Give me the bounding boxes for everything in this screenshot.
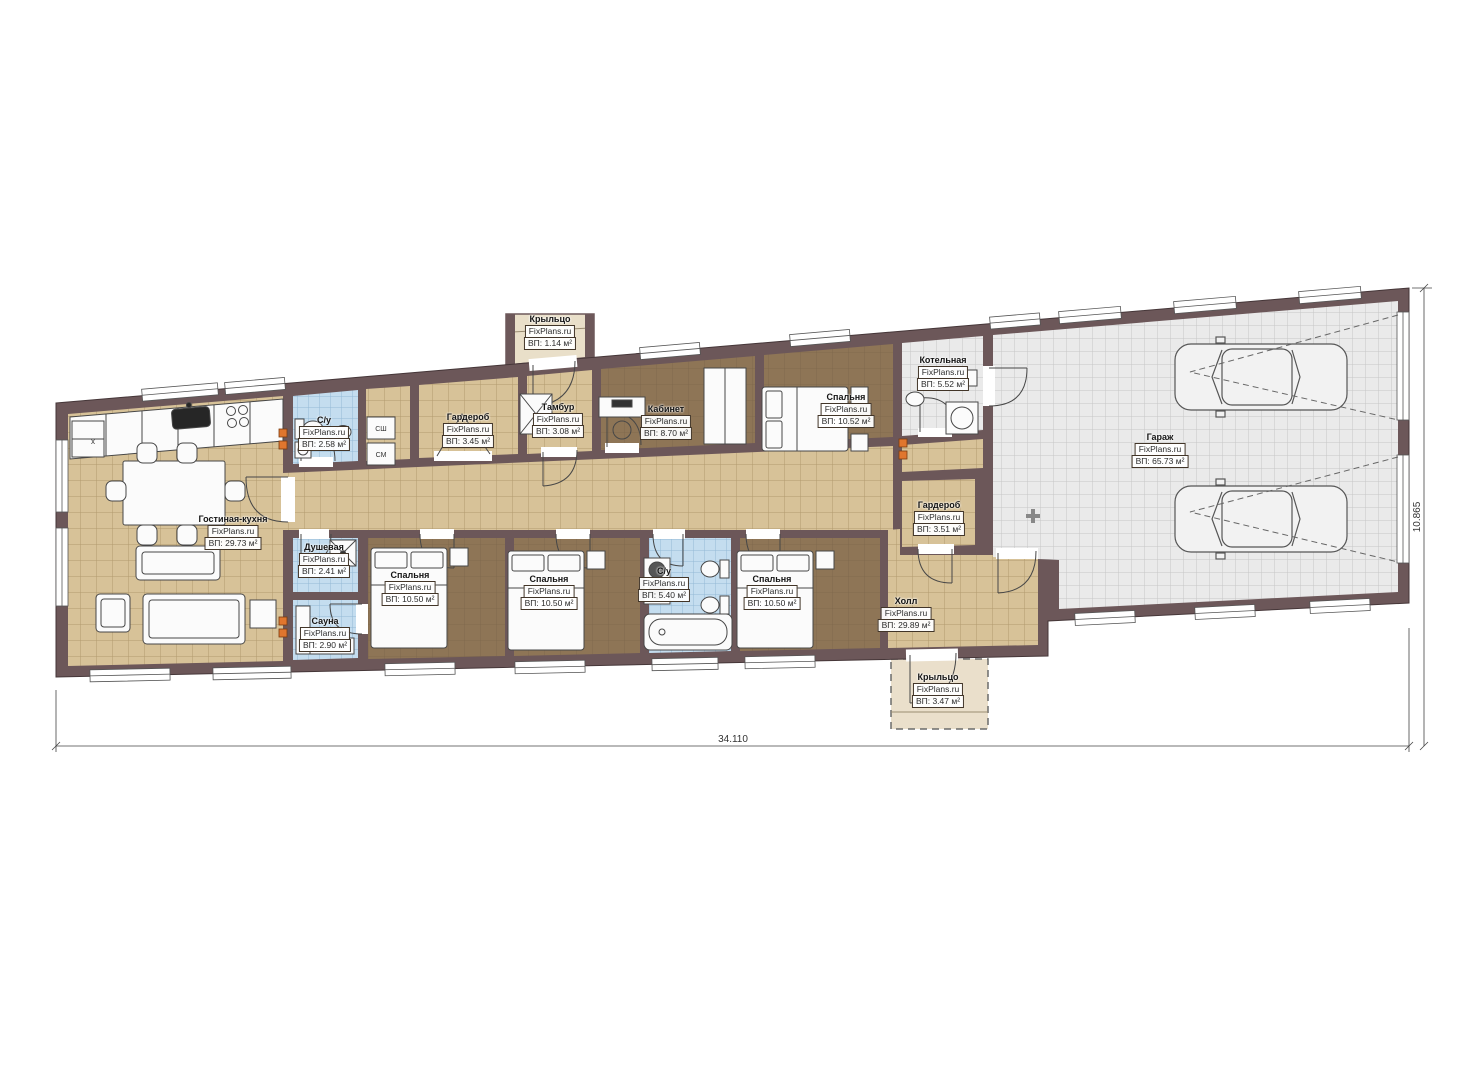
coffee-table: [250, 600, 276, 628]
floor-wardrobe2: [902, 479, 975, 547]
kitchen-x-mark: x: [91, 437, 95, 446]
dryer-label: СШ: [375, 426, 386, 433]
dimension-width: 34.110: [718, 734, 748, 745]
floor-wardrobe1: [419, 377, 518, 458]
washer-label: СМ: [376, 452, 387, 459]
car-2: [1175, 479, 1347, 559]
entry-mat: [520, 394, 552, 434]
floorplan-drawing: СШ СМ x 34.110 10.865: [0, 0, 1473, 1080]
floorplan-canvas: СШ СМ x 34.110 10.865 Крыльцо FixPlans.r…: [0, 0, 1473, 1080]
sink: [335, 426, 351, 439]
dimension-height: 10.865: [1412, 501, 1423, 532]
car-1: [1175, 337, 1347, 417]
shower-tray: [330, 540, 356, 566]
